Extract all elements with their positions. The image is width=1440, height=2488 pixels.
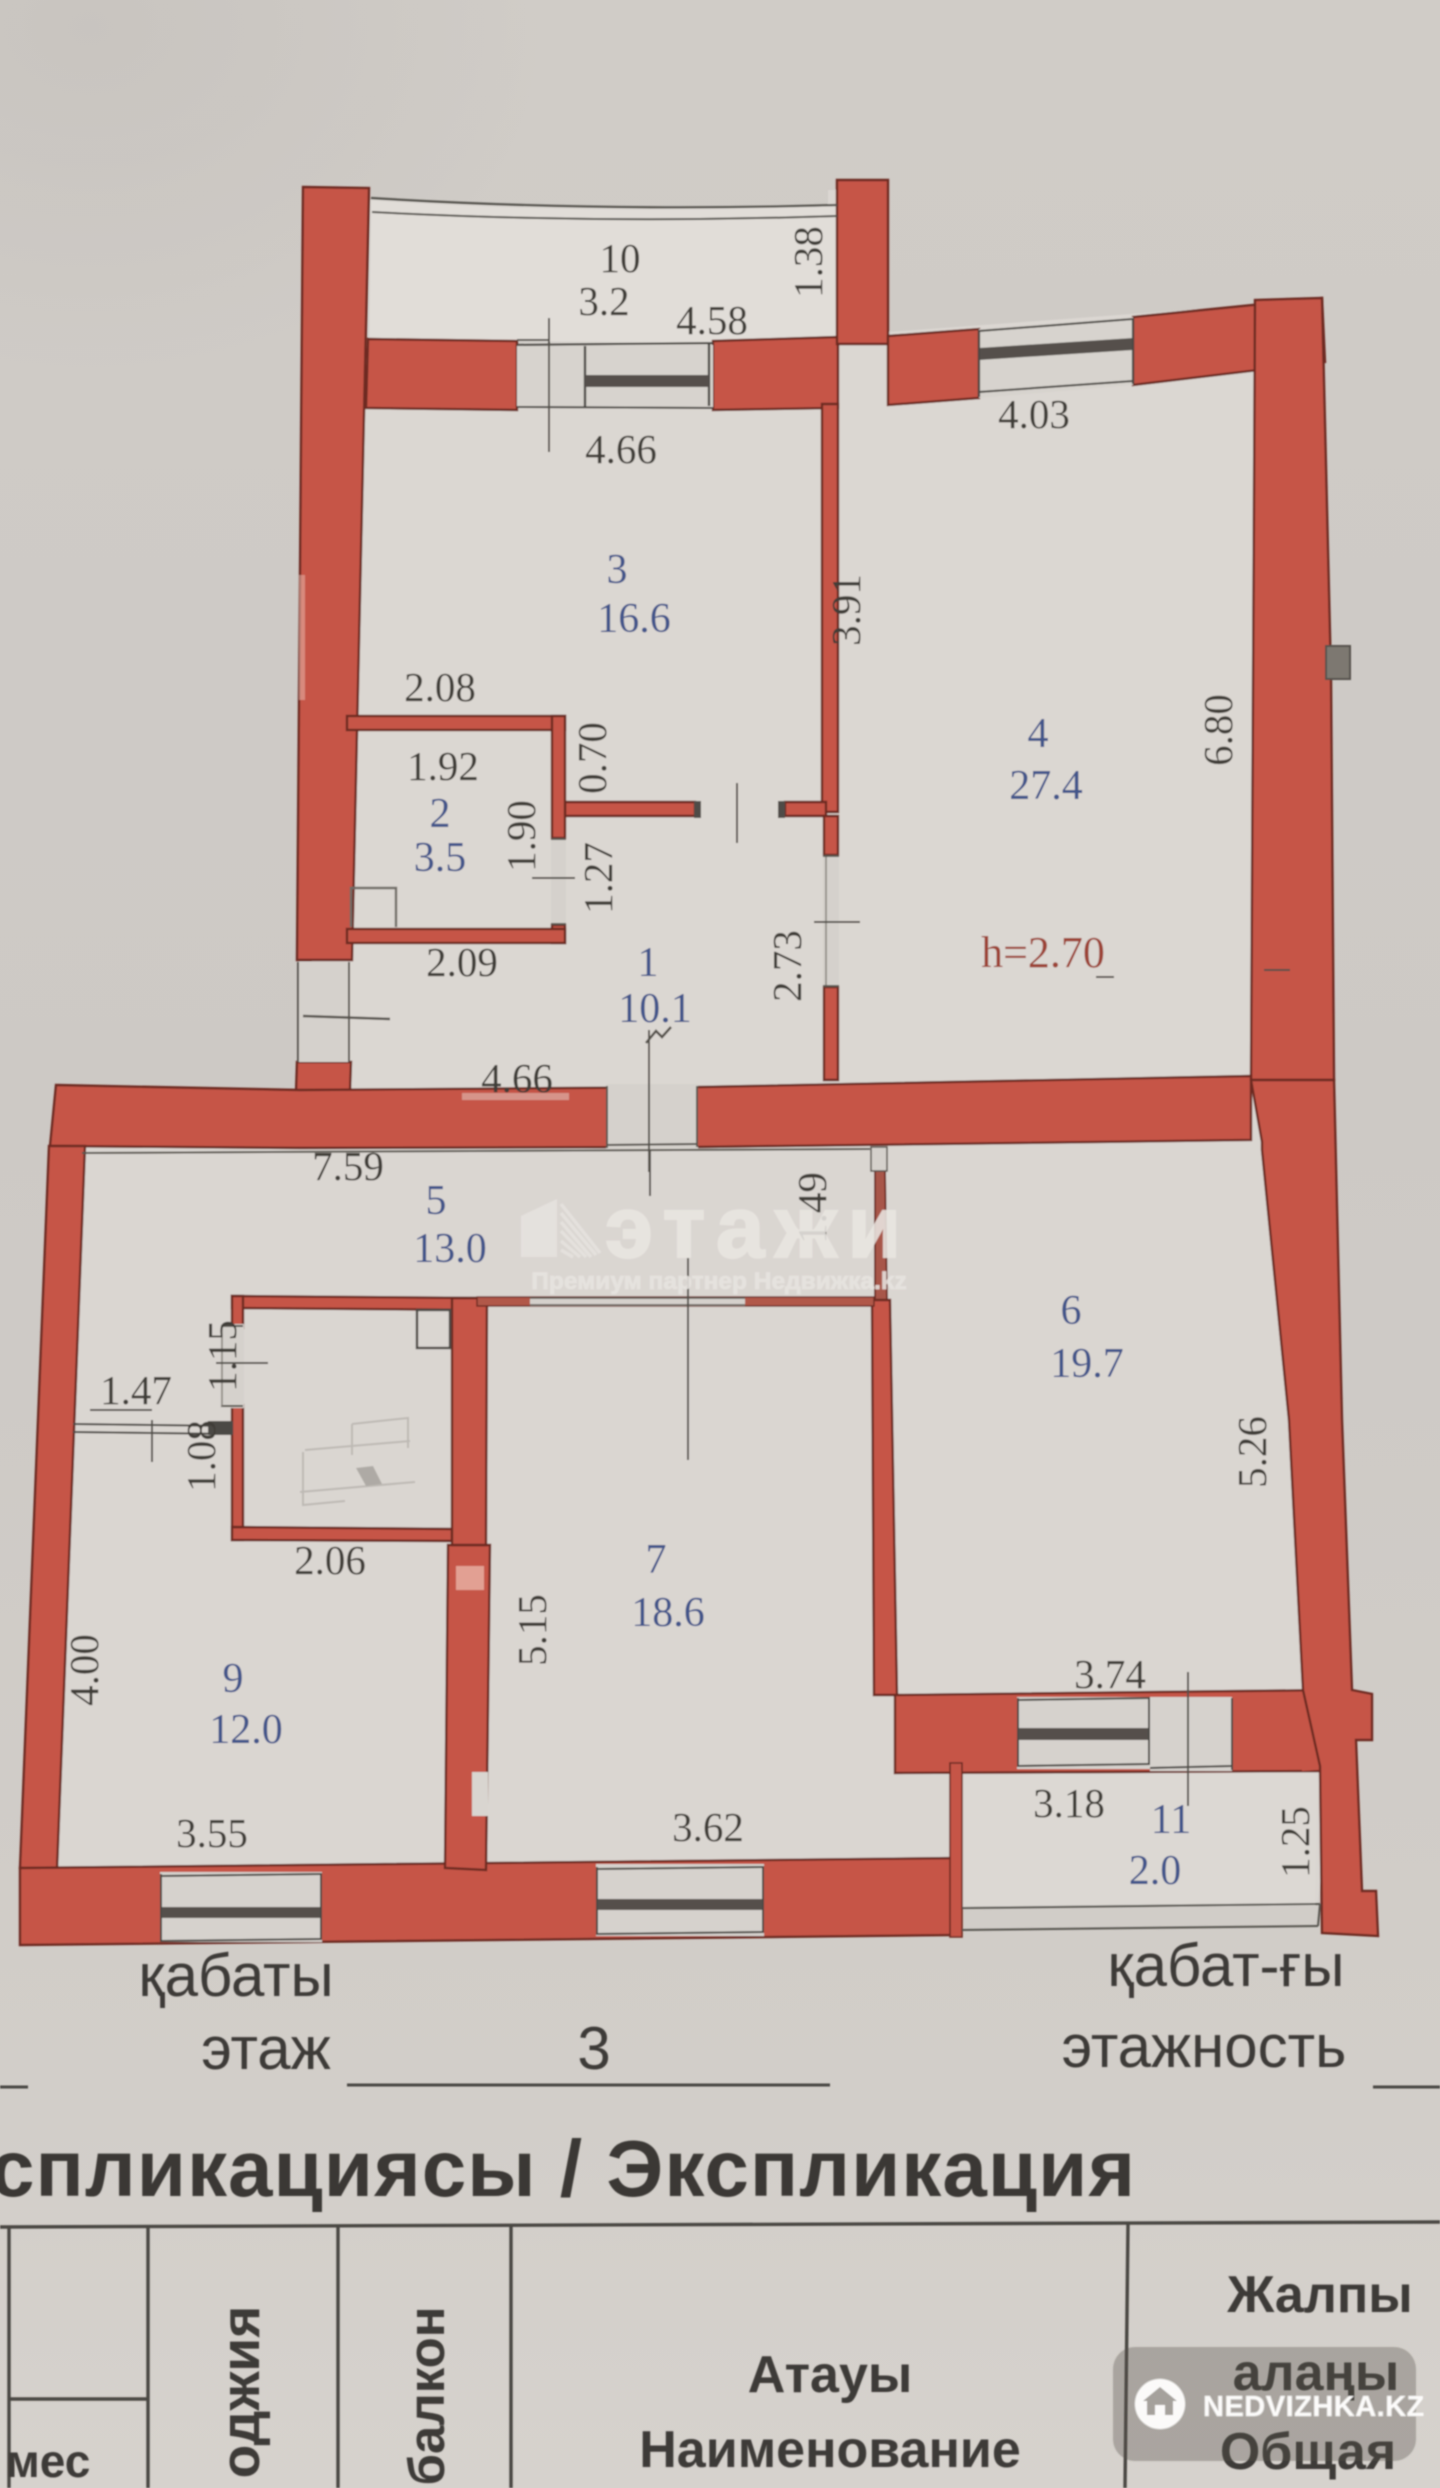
svg-text:10.1: 10.1 (618, 986, 692, 1032)
svg-text:2: 2 (430, 791, 451, 837)
svg-text:3.2: 3.2 (578, 278, 629, 324)
svg-text:Наименование: Наименование (639, 2421, 1021, 2479)
svg-text:7: 7 (646, 1537, 667, 1583)
svg-text:11: 11 (1151, 1797, 1191, 1843)
svg-text:5.15: 5.15 (509, 1594, 555, 1666)
svg-text:1.47: 1.47 (100, 1367, 172, 1413)
svg-text:этажи: этажи (605, 1179, 901, 1276)
svg-text:9: 9 (223, 1656, 244, 1702)
svg-text:6.80: 6.80 (1195, 694, 1241, 766)
svg-text:2.08: 2.08 (404, 664, 476, 710)
svg-text:1.92: 1.92 (407, 743, 479, 789)
svg-text:3.91: 3.91 (823, 574, 869, 646)
svg-text:Атауы: Атауы (748, 2346, 913, 2404)
svg-text:5: 5 (426, 1178, 447, 1224)
svg-text:19.7: 19.7 (1050, 1341, 1124, 1387)
svg-text:3.18: 3.18 (1033, 1780, 1105, 1826)
svg-text:спликациясы / Экспликация: спликациясы / Экспликация (0, 2124, 1135, 2213)
svg-text:1.15: 1.15 (199, 1320, 245, 1392)
svg-text:NEDVIZHKA.KZ: NEDVIZHKA.KZ (1203, 2391, 1425, 2423)
svg-text:2.73: 2.73 (764, 930, 810, 1002)
svg-text:2.0: 2.0 (1129, 1848, 1182, 1894)
svg-text:Премиум партнер Недвижка.kz: Премиум партнер Недвижка.kz (531, 1268, 907, 1295)
svg-text:3.62: 3.62 (672, 1804, 744, 1850)
svg-text:4.58: 4.58 (676, 297, 748, 343)
svg-text:h=2.70: h=2.70 (981, 928, 1105, 977)
svg-text:27.4: 27.4 (1009, 763, 1083, 809)
svg-text:2.06: 2.06 (294, 1537, 366, 1583)
svg-text:3: 3 (577, 2015, 610, 2082)
svg-text:18.6: 18.6 (631, 1590, 705, 1636)
svg-text:4.66: 4.66 (481, 1055, 553, 1101)
svg-text:3.5: 3.5 (414, 835, 467, 881)
svg-text:4.03: 4.03 (998, 391, 1070, 437)
svg-text:4: 4 (1028, 711, 1049, 757)
svg-text:3: 3 (607, 547, 628, 593)
svg-text:5.26: 5.26 (1229, 1416, 1275, 1488)
svg-text:4.66: 4.66 (585, 426, 657, 472)
svg-text:3.55: 3.55 (176, 1810, 248, 1856)
svg-text:этаж: этаж (201, 2015, 331, 2082)
svg-text:0.70: 0.70 (569, 722, 615, 794)
svg-text:1.27: 1.27 (575, 842, 621, 914)
svg-text:мес: мес (6, 2435, 91, 2487)
svg-text:16.6: 16.6 (597, 596, 671, 642)
svg-text:6: 6 (1061, 1288, 1082, 1334)
svg-text:1.25: 1.25 (1272, 1806, 1318, 1878)
svg-text:оджия: оджия (209, 2306, 271, 2479)
svg-text:2.09: 2.09 (426, 939, 498, 985)
svg-text:қабаты: қабаты (138, 1942, 333, 2009)
svg-text:4.00: 4.00 (61, 1634, 107, 1706)
svg-text:1.90: 1.90 (498, 800, 544, 872)
svg-text:Жалпы: Жалпы (1226, 2266, 1412, 2324)
svg-text:балкон: балкон (398, 2306, 455, 2485)
svg-text:10: 10 (600, 235, 641, 281)
svg-text:1.08: 1.08 (178, 1420, 224, 1492)
svg-text:қабат-ғы: қабат-ғы (1107, 1932, 1344, 1999)
svg-text:этажность: этажность (1062, 2013, 1347, 2080)
svg-text:7.59: 7.59 (312, 1143, 384, 1189)
svg-text:3.74: 3.74 (1074, 1651, 1146, 1697)
svg-text:12.0: 12.0 (209, 1707, 283, 1753)
svg-text:1: 1 (638, 940, 659, 986)
svg-text:1.38: 1.38 (785, 226, 831, 298)
svg-text:13.0: 13.0 (413, 1226, 487, 1272)
